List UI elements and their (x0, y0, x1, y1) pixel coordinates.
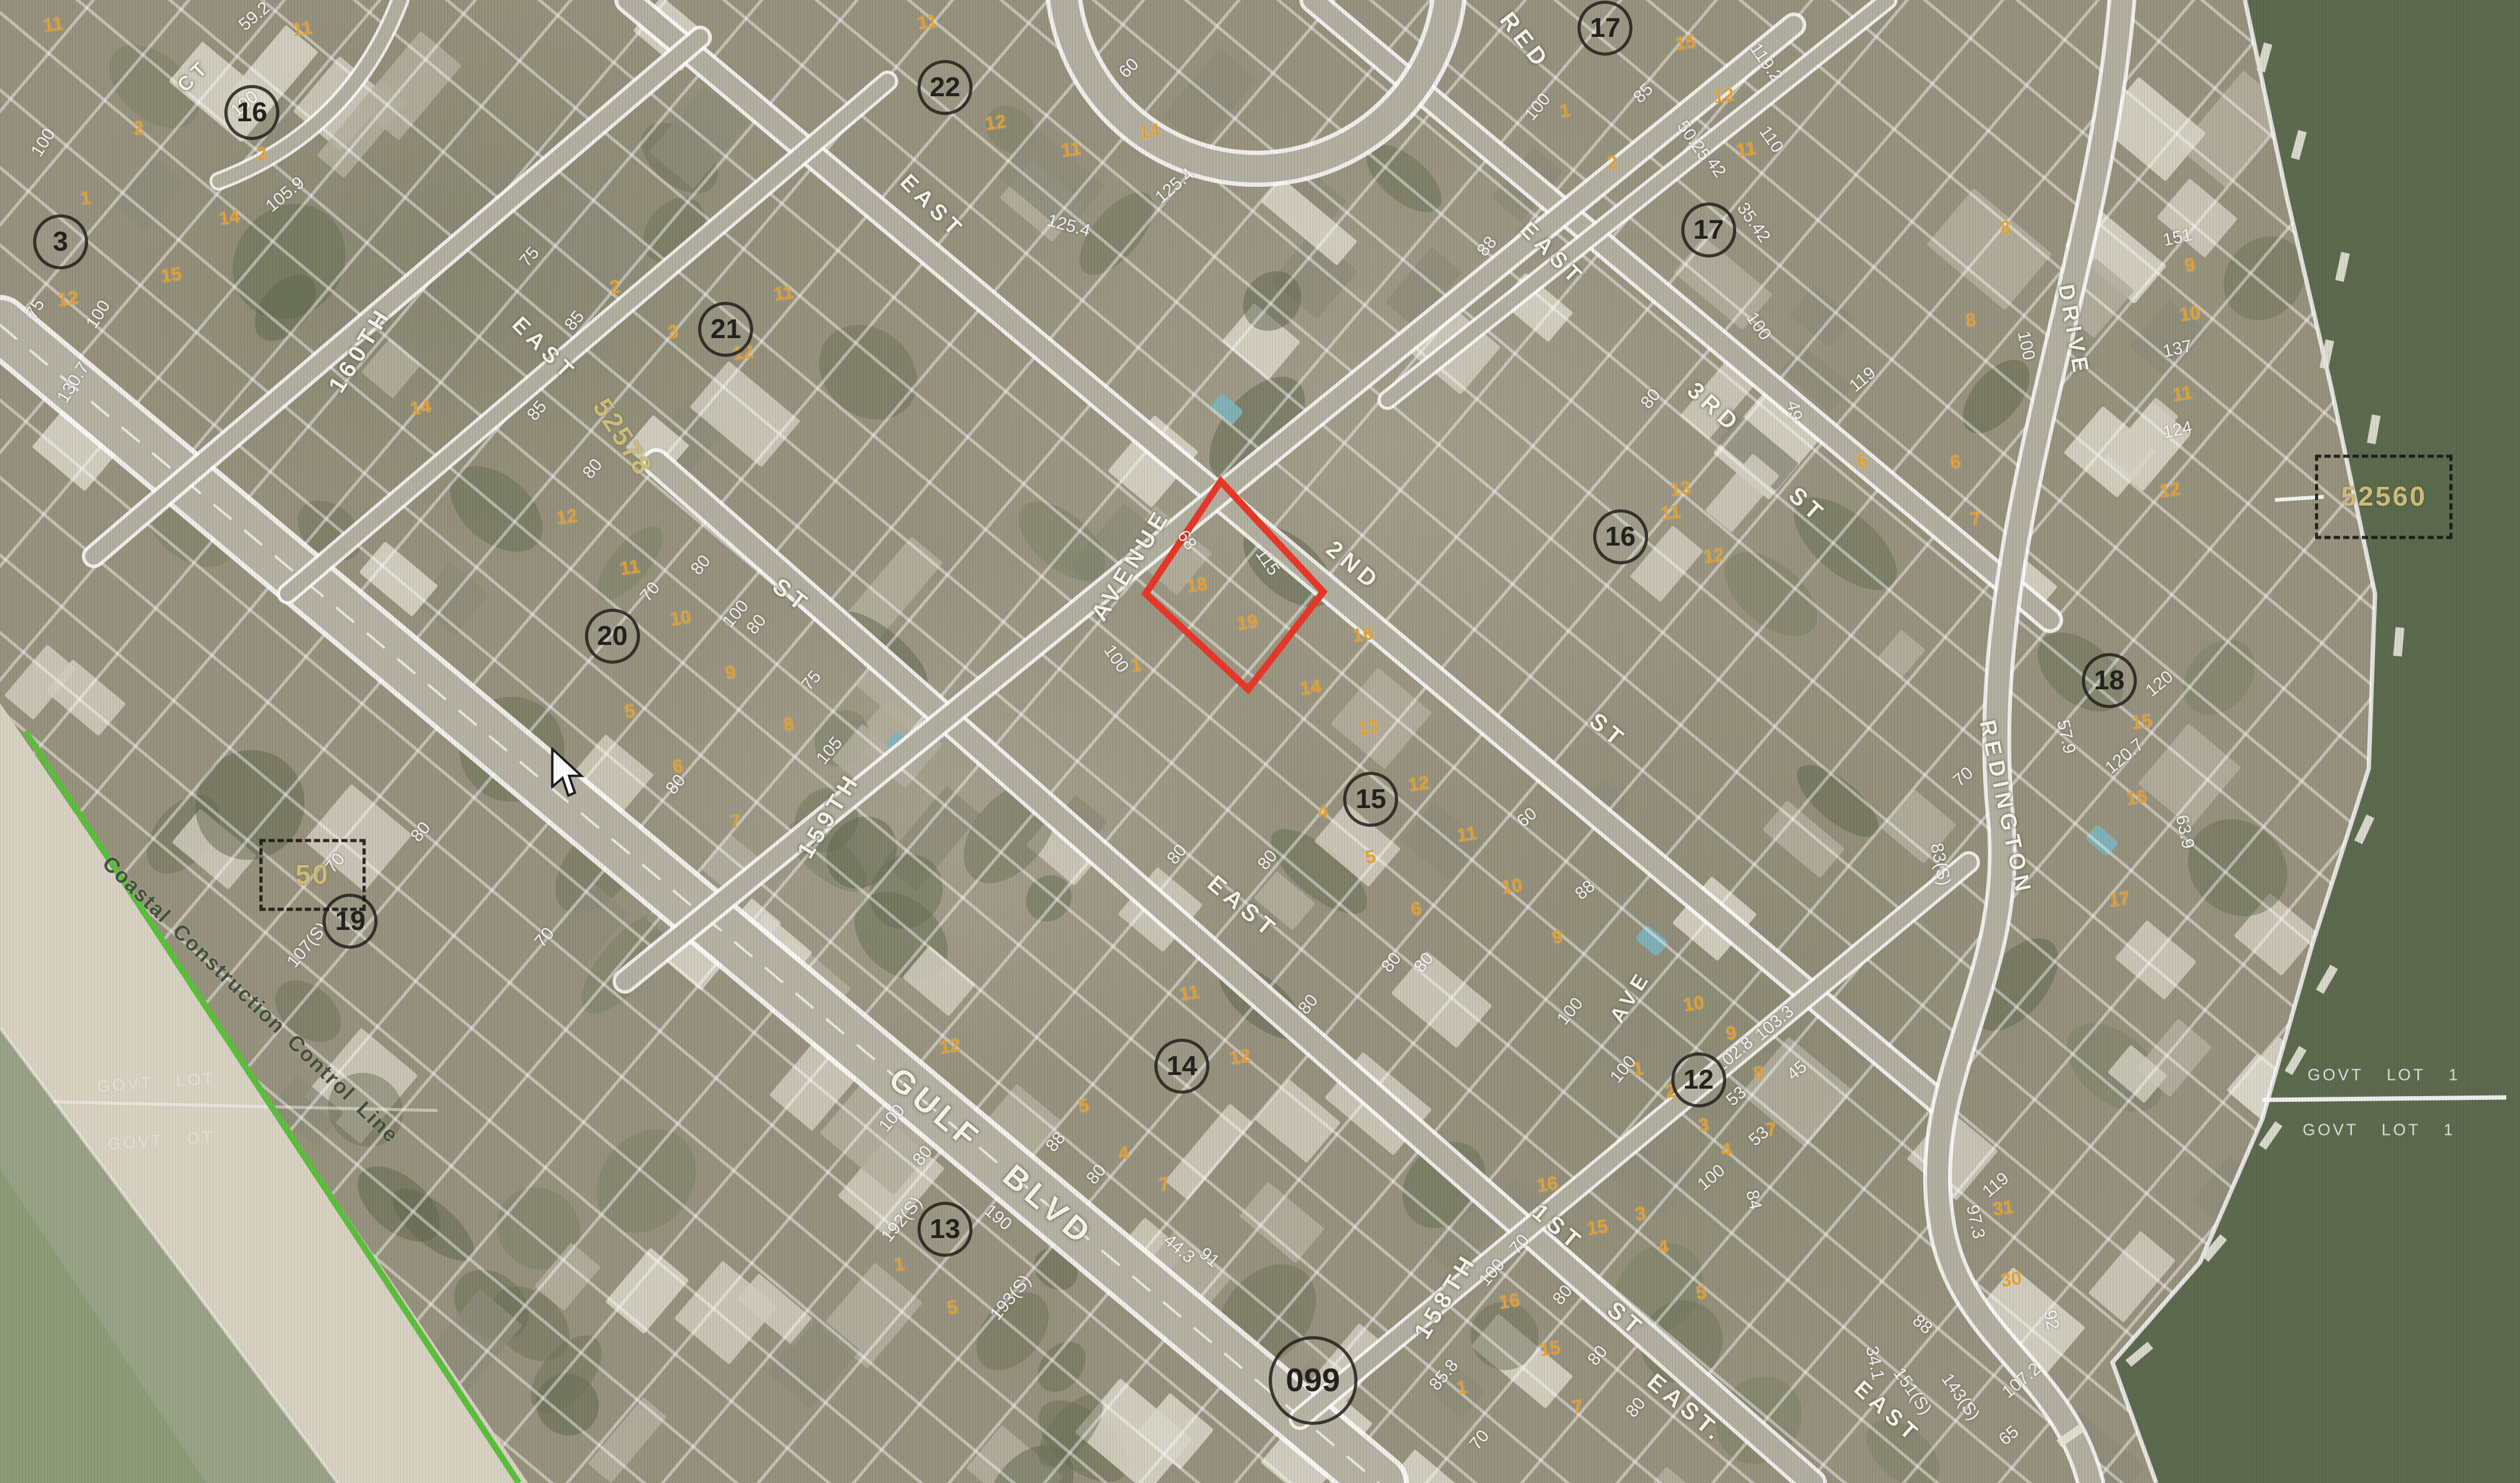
lot-number: 4 (1656, 1236, 1669, 1259)
dimension-label: 100 (1100, 641, 1133, 676)
lot-number: 12 (56, 287, 80, 311)
dimension-label: 100 (1553, 994, 1587, 1029)
lot-number: 11 (2171, 382, 2194, 406)
dimension-label: 53 (1722, 1082, 1750, 1110)
dimension-label: 60 (1513, 803, 1541, 831)
lot-number: 2 (256, 143, 269, 166)
lot-number: 31 (1992, 1197, 2016, 1221)
block-number-badge: 14 (1154, 1039, 1209, 1094)
lot-number: 9 (1551, 926, 1564, 949)
dimension-label: 80 (1082, 1161, 1111, 1188)
lot-number: 7 (729, 811, 742, 833)
lot-number: 4 (1719, 1139, 1732, 1162)
dimension-label: 100 (1742, 309, 1776, 344)
lot-number: 16 (1497, 1290, 1521, 1314)
lot-number: 2 (608, 276, 621, 299)
dimension-label: 85 (1629, 79, 1657, 107)
lot-number: 2 (132, 117, 145, 140)
lot-number: 6 (1856, 450, 1869, 472)
lot-number: 12 (1407, 772, 1431, 796)
dimension-label: 88 (1571, 876, 1599, 904)
dimension-label: 100 (27, 125, 59, 161)
dimension-label: 80 (1410, 949, 1438, 976)
dimension-label: 193(S) (986, 1271, 1036, 1324)
lot-number: 3 (1697, 1114, 1710, 1137)
block-number-badge: 18 (2082, 653, 2137, 708)
lot-number: 1 (79, 187, 92, 210)
lot-number: 5 (1077, 1095, 1090, 1117)
block-number-badge: 20 (585, 609, 640, 664)
lot-number: 12 (984, 111, 1007, 135)
dimension-label: 107.2 (1998, 1359, 2044, 1402)
dimension-label: 88 (1473, 232, 1501, 260)
dimension-label: 130.7 (53, 359, 93, 406)
street-label: EAST (1515, 216, 1590, 291)
lot-number: 17 (2107, 888, 2131, 912)
dimension-label: 119.2 (1746, 39, 1787, 86)
dimension-label: 68 (1173, 526, 1201, 554)
lot-number: 7 (1765, 1119, 1778, 1141)
lot-number: 12 (2158, 479, 2182, 502)
plat-id-label: 50 (295, 859, 329, 891)
lot-number: 8 (1964, 309, 1977, 332)
street-label: REDINGTON (1974, 717, 2037, 899)
lot-number: 11 (1659, 501, 1682, 525)
dimension-label: 125.4 (1151, 164, 1197, 207)
dimension-label: 80 (1377, 949, 1405, 976)
dimension-label: 119 (1979, 1168, 2013, 1201)
dimension-label: 97.3 (1962, 1203, 1989, 1241)
lot-number: 15 (1674, 31, 1698, 55)
dimension-label: 80 (1163, 841, 1191, 868)
dimension-label: 65 (1994, 1422, 2022, 1450)
lot-number: 10 (669, 606, 692, 630)
dimension-label: 100 (1694, 1161, 1729, 1195)
lot-number: 7 (1571, 1396, 1584, 1419)
street-label: 158TH (1409, 1248, 1483, 1344)
dimension-label: 49 (1782, 399, 1806, 422)
lot-number: 13 (1356, 716, 1380, 740)
lot-number: 7 (1157, 1174, 1171, 1196)
street-label: 160TH (324, 302, 397, 397)
dimension-label: 63.9 (2171, 813, 2198, 851)
dimension-label: 75 (515, 242, 543, 270)
dimension-label: 80 (687, 551, 715, 579)
dimension-label: 84 (1742, 1188, 1766, 1211)
dimension-label: 80 (1254, 846, 1282, 874)
lot-number: 1 (1130, 654, 1143, 677)
lot-number: 18 (1185, 574, 1209, 597)
street-label: CT (173, 54, 216, 97)
dimension-label: 80 (1637, 385, 1665, 412)
lot-number: 5 (1364, 846, 1377, 869)
street-label: AVENUE (1086, 504, 1176, 626)
dimension-label: 44.3 (1160, 1230, 1199, 1267)
lot-number: 15 (2130, 710, 2154, 734)
lot-number: 15 (159, 264, 183, 287)
lot-number: 12 (555, 506, 579, 529)
block-number-badge: 099 (1269, 1336, 1357, 1425)
dimension-label: 151 (2161, 224, 2193, 250)
lot-number: 16 (1351, 622, 1375, 646)
dimension-label: 70 (531, 924, 559, 951)
lot-number: 11 (1178, 982, 1201, 1006)
dimension-label: 92 (2039, 1308, 2063, 1331)
street-label: EAST (895, 169, 970, 244)
street-label: ST (1783, 482, 1831, 529)
lot-number: 11 (1456, 823, 1478, 847)
lot-number: 4 (1316, 801, 1329, 824)
dimension-label: 59.2 (235, 0, 274, 35)
lot-number: 15 (1586, 1216, 1609, 1240)
mouse-cursor (549, 747, 584, 803)
dimension-label: 110 (1756, 122, 1788, 157)
block-number-badge: 13 (917, 1202, 972, 1257)
lot-number: 16 (2125, 786, 2149, 810)
lot-number: 5 (946, 1297, 959, 1319)
lot-number: 14 (217, 206, 241, 230)
lot-number: 6 (1949, 451, 1962, 474)
lot-number: 10 (1500, 875, 1524, 899)
block-number-badge: 21 (698, 302, 753, 357)
street-label: ST (767, 573, 815, 619)
lot-number: 13 (1669, 477, 1692, 501)
street-label: 2ND (1321, 536, 1386, 597)
street-label: 159TH (792, 767, 866, 863)
lot-number: 11 (916, 11, 939, 34)
lot-number: 3 (1634, 1203, 1647, 1226)
lot-number: 11 (619, 556, 641, 580)
dimension-label: 103.3 (1751, 1002, 1797, 1046)
street-label: EAST (1202, 871, 1283, 945)
block-number-badge: 16 (224, 85, 279, 140)
lot-number: 4 (1117, 1142, 1131, 1165)
map-labels: AVENUE159TH160TH158THGULFBLVD1STSTEAST.S… (0, 0, 2520, 1483)
dimension-label: 70 (1506, 1231, 1534, 1258)
dimension-label: 83(S) (1926, 842, 1955, 888)
lot-number: 5 (623, 701, 636, 723)
lot-number: 8 (1752, 1062, 1766, 1085)
block-number-badge: 16 (1593, 509, 1648, 564)
lot-number: 16 (1536, 1173, 1559, 1197)
govt-lot-label: GOVT LOT 1 (2302, 1121, 2455, 1140)
dimension-label: 45 (1783, 1057, 1811, 1085)
lot-number: 7 (1969, 508, 1982, 531)
lot-number: 1 (1455, 1377, 1468, 1399)
lot-number: 10 (2178, 302, 2202, 326)
block-number-badge: 17 (1577, 1, 1632, 56)
lot-number: 11 (1735, 138, 1757, 162)
dimension-label: 85 (561, 306, 589, 334)
lot-number: 12 (938, 1035, 962, 1059)
lot-number: 12 (1702, 544, 1726, 568)
govt-lot-label: GOVT LOT 1 (2307, 1066, 2460, 1085)
dimension-label: 88 (1909, 1311, 1936, 1339)
dimension-label: 100 (82, 297, 114, 332)
street-label: DRIVE (2053, 282, 2095, 379)
lot-number: 9 (1724, 1022, 1737, 1045)
map-viewport[interactable]: AVENUE159TH160TH158THGULFBLVD1STSTEAST.S… (0, 0, 2520, 1483)
lot-number: 8 (782, 714, 795, 736)
dimension-label: 124 (2161, 417, 2193, 443)
govt-lot-label: GOVT OT (107, 1127, 215, 1154)
lot-number: 14 (1137, 120, 1161, 144)
lot-number: 11 (1060, 138, 1082, 162)
dimension-label: 120 (2142, 667, 2177, 701)
block-number-badge: 3 (33, 214, 88, 269)
block-number-badge: 17 (1681, 202, 1736, 257)
lot-number: 30 (1999, 1268, 2023, 1292)
dimension-label: 119 (1845, 363, 1879, 396)
lot-number: 12 (1712, 84, 1736, 108)
street-label: RED (1494, 7, 1555, 76)
dimension-label: 88 (1042, 1128, 1070, 1156)
lot-number: 5 (1694, 1282, 1707, 1304)
dimension-label: 91 (1196, 1244, 1223, 1272)
dimension-label: 143(S) (1937, 1370, 1984, 1424)
dimension-label: 75 (22, 295, 49, 322)
lot-number: 11 (772, 282, 795, 306)
street-label: AVE (1605, 966, 1656, 1027)
lot-number: 8 (1999, 217, 2012, 239)
lot-number: 1 (893, 1254, 906, 1276)
dimension-label: 100 (2013, 329, 2039, 362)
dimension-label: 35.42 (1733, 199, 1774, 246)
dimension-label: 80 (908, 1141, 936, 1169)
dimension-label: 50.25 (1672, 117, 1714, 165)
lot-number: 12 (1228, 1046, 1252, 1069)
lot-number: 14 (409, 396, 432, 419)
dimension-label: 60 (1115, 54, 1143, 82)
dimension-label: 80 (1294, 990, 1322, 1017)
lot-number: 10 (1682, 992, 1706, 1016)
dimension-label: 70 (1949, 763, 1977, 791)
dimension-label: 105 (812, 733, 846, 768)
dimension-label: 100 (1520, 89, 1554, 124)
plat-id-label: 52560 (2341, 481, 2427, 512)
lot-number: 11 (291, 17, 314, 41)
dimension-label: 105.9 (261, 172, 307, 216)
lot-number: 3 (666, 321, 679, 344)
lot-number: 15 (1538, 1337, 1562, 1361)
block-number-badge: 22 (917, 60, 972, 115)
lot-number: 11 (42, 13, 64, 37)
street-label: 1ST (1526, 1199, 1588, 1257)
dimension-label: 80 (578, 455, 606, 482)
lot-number: 1 (1558, 100, 1571, 122)
street-label: EAST. (1642, 1369, 1730, 1449)
dimension-label: 80 (1621, 1394, 1649, 1421)
govt-lot-label: GOVT LOT (97, 1069, 216, 1096)
dimension-label: 70 (636, 578, 664, 606)
dimension-label: 85 (523, 397, 551, 424)
lot-number: 19 (1236, 611, 1259, 634)
lot-number: 9 (724, 662, 737, 684)
dimension-label: 190 (980, 1201, 1015, 1235)
dimension-label: 80 (1549, 1281, 1577, 1308)
block-number-badge: 15 (1343, 772, 1398, 827)
street-label: ST (1584, 708, 1632, 754)
dimension-label: 80 (407, 818, 435, 846)
lot-number: 14 (1299, 676, 1322, 700)
dimension-label: 115 (1251, 545, 1284, 579)
lot-number: 1 (1631, 1058, 1644, 1081)
dimension-label: 120.7 (2101, 734, 2147, 778)
dimension-label: 57.9 (2053, 718, 2080, 756)
dimension-label: 80 (1584, 1342, 1612, 1369)
dimension-label: 75 (797, 667, 826, 694)
street-label: ST (1601, 1297, 1649, 1343)
dimension-label: 70 (1466, 1426, 1494, 1454)
block-number-badge: 12 (1671, 1052, 1726, 1107)
lot-number: 9 (2183, 254, 2196, 277)
dimension-label: 137 (2161, 336, 2193, 361)
street-label: 3RD (1681, 377, 1746, 439)
dimension-label: 125.4 (1045, 210, 1092, 241)
lot-number: 2 (1606, 152, 1619, 174)
lot-number: 6 (1409, 898, 1422, 921)
